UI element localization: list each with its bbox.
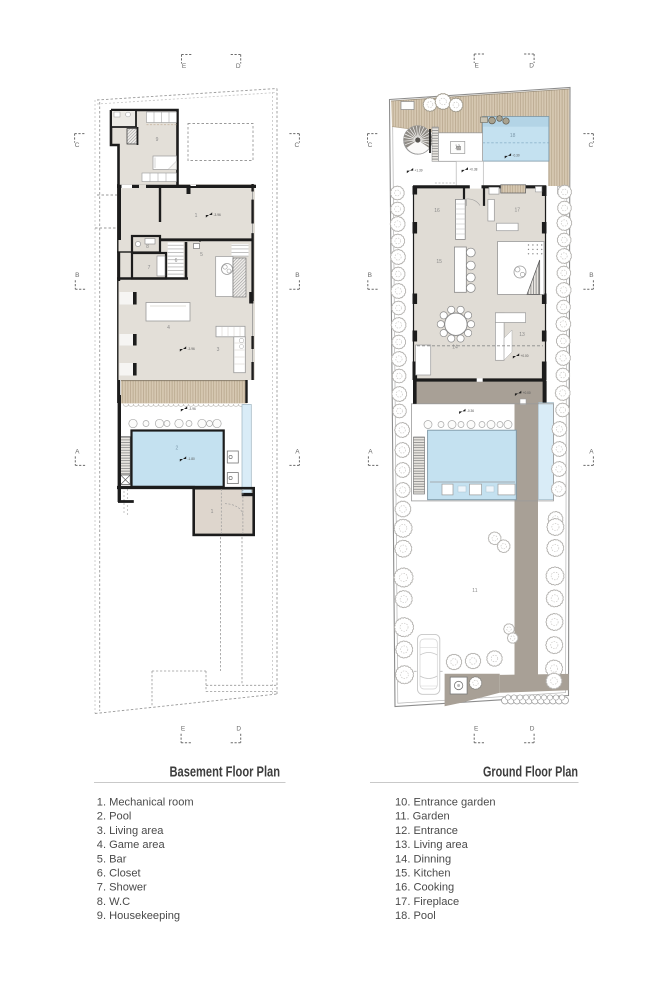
svg-text:5. Bar: 5. Bar bbox=[97, 853, 127, 865]
svg-text:17. Fireplace: 17. Fireplace bbox=[395, 896, 459, 908]
svg-text:D: D bbox=[236, 726, 241, 733]
svg-text:15: 15 bbox=[436, 259, 442, 265]
svg-text:Ground Floor Plan: Ground Floor Plan bbox=[483, 764, 578, 781]
svg-text:A: A bbox=[589, 448, 594, 455]
svg-text:2. Pool: 2. Pool bbox=[97, 811, 132, 823]
svg-text:17: 17 bbox=[515, 208, 521, 214]
svg-text:13: 13 bbox=[519, 332, 525, 338]
svg-text:7. Shower: 7. Shower bbox=[97, 882, 147, 894]
svg-text:8. W.C: 8. W.C bbox=[97, 896, 130, 908]
svg-text:16. Cooking: 16. Cooking bbox=[395, 882, 454, 894]
svg-text:12. Entrance: 12. Entrance bbox=[395, 825, 458, 837]
svg-text:4: 4 bbox=[167, 325, 170, 331]
svg-text:18: 18 bbox=[510, 133, 516, 139]
svg-text:E: E bbox=[475, 63, 480, 70]
svg-text:-0.30: -0.30 bbox=[512, 154, 519, 158]
svg-text:2: 2 bbox=[176, 445, 179, 451]
svg-text:+0.00: +0.00 bbox=[523, 391, 531, 395]
svg-text:C: C bbox=[368, 142, 373, 149]
svg-text:-3.96: -3.96 bbox=[214, 213, 221, 217]
svg-text:A: A bbox=[368, 448, 373, 455]
svg-text:18. Pool: 18. Pool bbox=[395, 910, 436, 922]
svg-text:B: B bbox=[368, 272, 372, 279]
svg-text:-3.96: -3.96 bbox=[188, 347, 195, 351]
svg-text:D: D bbox=[530, 726, 535, 733]
svg-text:5: 5 bbox=[200, 252, 203, 258]
svg-text:B: B bbox=[295, 272, 299, 279]
svg-text:3. Living area: 3. Living area bbox=[97, 825, 164, 837]
svg-text:E: E bbox=[181, 726, 186, 733]
svg-text:4. Game area: 4. Game area bbox=[97, 839, 166, 851]
svg-text:9. Housekeeping: 9. Housekeeping bbox=[97, 910, 180, 922]
svg-text:+0.38: +0.38 bbox=[469, 168, 477, 172]
svg-text:A: A bbox=[75, 448, 80, 455]
svg-text:3: 3 bbox=[217, 347, 220, 353]
svg-text:C: C bbox=[295, 142, 300, 149]
svg-text:14: 14 bbox=[452, 345, 458, 351]
svg-text:7: 7 bbox=[148, 265, 151, 271]
svg-text:10. Entrance garden: 10. Entrance garden bbox=[395, 797, 496, 809]
svg-text:11. Garden: 11. Garden bbox=[395, 811, 450, 823]
svg-text:A: A bbox=[295, 448, 300, 455]
svg-text:-3.96: -3.96 bbox=[189, 407, 196, 411]
svg-text:12: 12 bbox=[455, 145, 461, 151]
svg-text:D: D bbox=[529, 63, 534, 70]
svg-text:6: 6 bbox=[175, 258, 178, 264]
svg-text:1. Mechanical room: 1. Mechanical room bbox=[97, 797, 194, 809]
svg-text:9: 9 bbox=[156, 137, 159, 143]
svg-text:11: 11 bbox=[472, 588, 477, 594]
svg-text:1: 1 bbox=[211, 509, 214, 515]
svg-text:15. Kitchen: 15. Kitchen bbox=[395, 868, 451, 880]
svg-text:14. Dinning: 14. Dinning bbox=[395, 853, 451, 865]
svg-text:8: 8 bbox=[146, 244, 149, 250]
svg-text:D: D bbox=[236, 63, 241, 70]
svg-text:B: B bbox=[589, 272, 593, 279]
svg-text:1: 1 bbox=[195, 213, 198, 219]
svg-text:E: E bbox=[474, 726, 479, 733]
svg-text:B: B bbox=[75, 272, 79, 279]
svg-text:C: C bbox=[75, 142, 80, 149]
svg-text:Basement Floor Plan: Basement Floor Plan bbox=[170, 764, 281, 781]
svg-text:6. Closet: 6. Closet bbox=[97, 868, 141, 880]
svg-text:13. Living area: 13. Living area bbox=[395, 839, 469, 851]
svg-text:16: 16 bbox=[434, 208, 440, 214]
svg-text:-1.80: -1.80 bbox=[188, 457, 195, 461]
svg-text:E: E bbox=[182, 63, 187, 70]
svg-text:+1.39: +1.39 bbox=[415, 168, 423, 172]
svg-text:+0.00: +0.00 bbox=[521, 354, 529, 358]
svg-text:C: C bbox=[589, 142, 594, 149]
svg-text:-0.36: -0.36 bbox=[467, 409, 474, 413]
